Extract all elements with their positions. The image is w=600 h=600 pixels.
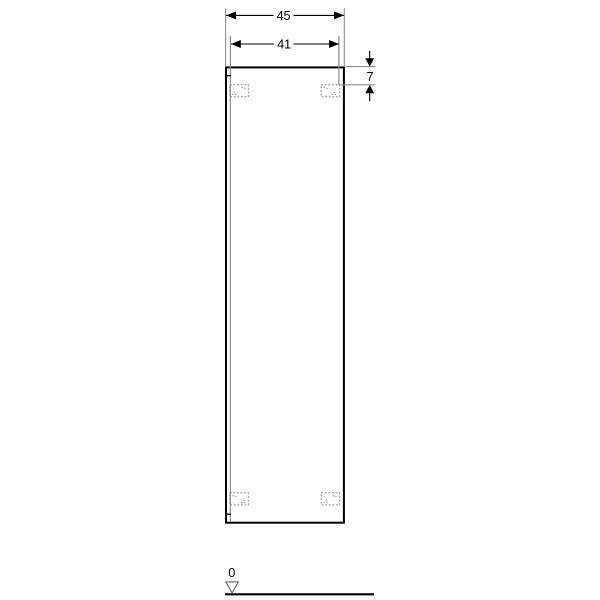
svg-text:0: 0 — [228, 565, 235, 580]
svg-text:41: 41 — [277, 37, 291, 52]
svg-text:45: 45 — [277, 8, 291, 23]
svg-text:7: 7 — [366, 69, 373, 84]
